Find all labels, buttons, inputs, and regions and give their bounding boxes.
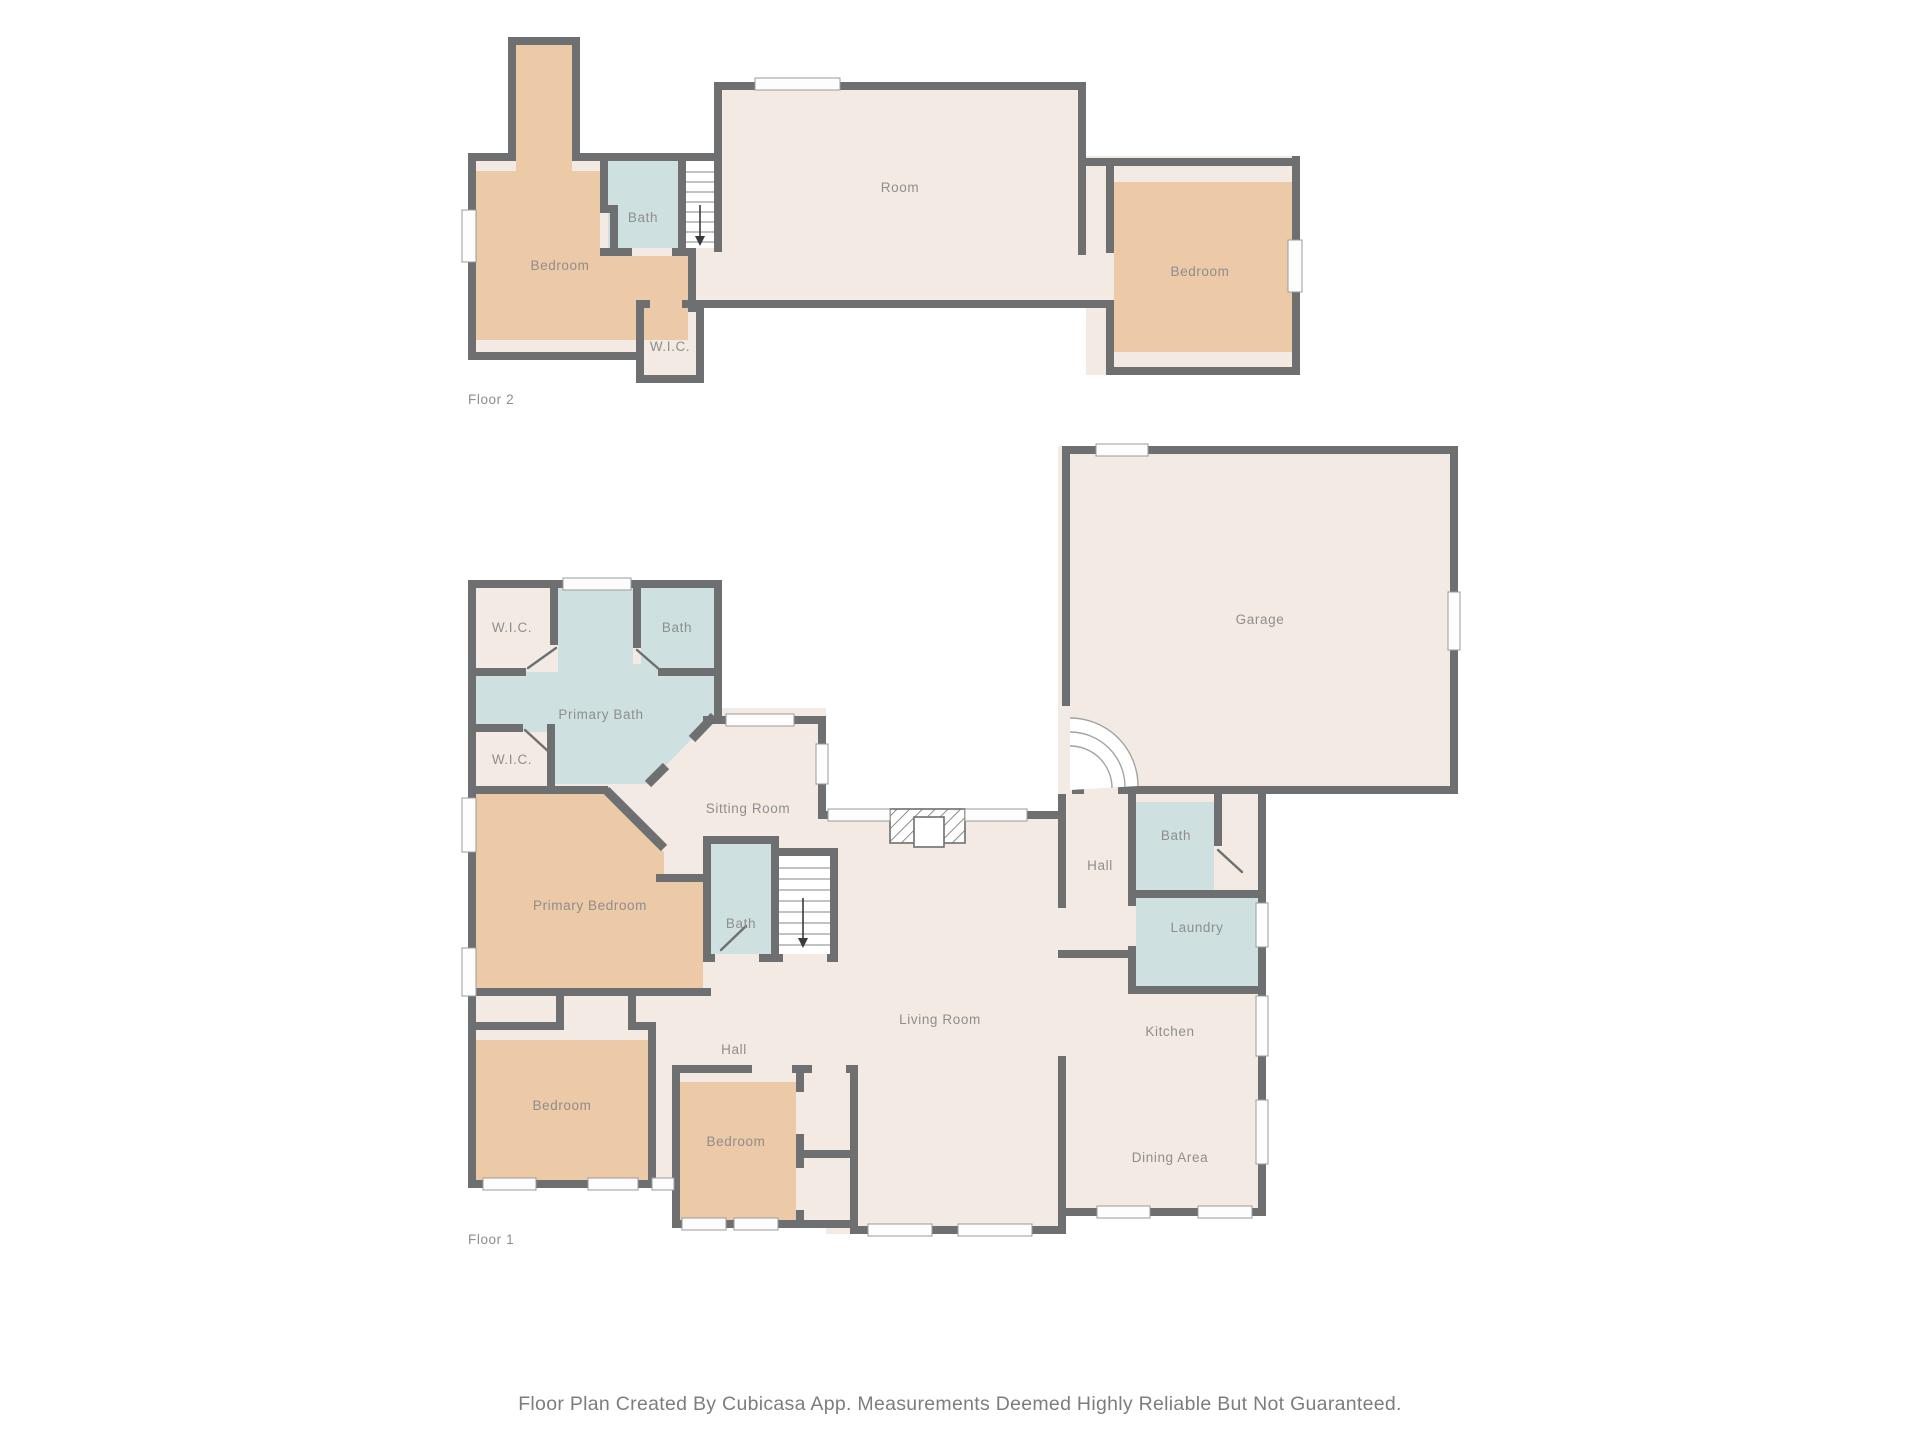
floor1-laundry-label: Laundry xyxy=(1171,920,1224,935)
window xyxy=(1097,1206,1150,1218)
window xyxy=(958,1224,1032,1236)
floor2-room-label: Room xyxy=(881,180,919,195)
floor1-bath-mid-label: Bath xyxy=(726,916,756,931)
floor-plan-page: Bedroom Bath Room Bedroom W.I.C. Floor 2 xyxy=(0,0,1920,1440)
window xyxy=(734,1218,778,1230)
floor2-stairs xyxy=(686,161,714,248)
floor1-wic-mid-label: W.I.C. xyxy=(492,752,532,767)
window xyxy=(755,78,840,90)
window xyxy=(965,809,1027,821)
window xyxy=(563,578,631,590)
caption: Floor Plan Created By Cubicasa App. Meas… xyxy=(518,1393,1402,1415)
floor1-primary-bath-label: Primary Bath xyxy=(558,707,643,722)
floor1-kitchen-label: Kitchen xyxy=(1145,1024,1194,1039)
floor2-plan: Bedroom Bath Room Bedroom W.I.C. Floor 2 xyxy=(462,37,1302,407)
window xyxy=(1256,903,1268,947)
floor-plan-canvas: Bedroom Bath Room Bedroom W.I.C. Floor 2 xyxy=(0,0,1920,1440)
floor1-sitting-label: Sitting Room xyxy=(706,801,790,816)
fireplace xyxy=(890,809,965,847)
floor1-bath-east-label: Bath xyxy=(1161,828,1191,843)
floor1-bedroom-mid-label: Bedroom xyxy=(707,1134,766,1149)
window xyxy=(1198,1206,1252,1218)
floor2-title: Floor 2 xyxy=(468,392,514,407)
window xyxy=(462,948,476,996)
floor1-bedroom-left-label: Bedroom xyxy=(533,1098,592,1113)
floor1-bedroom-mid-room xyxy=(680,1082,796,1220)
floor1-dining-label: Dining Area xyxy=(1132,1150,1208,1165)
window xyxy=(588,1178,638,1190)
floor2-bedroom-left-protrusion xyxy=(516,45,572,171)
window xyxy=(462,798,476,852)
floor1-primary-bedroom-label: Primary Bedroom xyxy=(533,898,647,913)
window xyxy=(652,1178,674,1190)
floor1-bath-mid-room xyxy=(711,844,771,954)
floor2-bedroom-right-label: Bedroom xyxy=(1171,264,1230,279)
window xyxy=(828,809,890,821)
floor1-plan: W.I.C. Bath Primary Bath W.I.C. Sitting … xyxy=(462,444,1460,1247)
floor1-hall-bottom-label: Hall xyxy=(721,1042,747,1057)
window xyxy=(462,210,476,262)
floor2-bath-label: Bath xyxy=(628,210,658,225)
window xyxy=(682,1218,726,1230)
window xyxy=(868,1224,932,1236)
window xyxy=(1256,996,1268,1056)
floor1-garage-label: Garage xyxy=(1236,612,1285,627)
window xyxy=(1448,592,1460,650)
window xyxy=(1096,444,1148,456)
floor1-bath-east-room xyxy=(1136,802,1214,890)
window xyxy=(726,714,794,726)
floor2-wic-label: W.I.C. xyxy=(650,339,690,354)
window xyxy=(1256,1100,1268,1164)
floor1-bath-top-label: Bath xyxy=(662,620,692,635)
floor2-bedroom-left-label: Bedroom xyxy=(531,258,590,273)
floor2-bath-room xyxy=(608,161,678,248)
window xyxy=(1288,240,1302,292)
floor1-hall-east-label: Hall xyxy=(1087,858,1113,873)
floor1-laundry-room xyxy=(1136,898,1258,986)
window xyxy=(483,1178,536,1190)
window xyxy=(816,744,828,784)
floor1-living-label: Living Room xyxy=(899,1012,981,1027)
floor1-stairs xyxy=(779,856,830,954)
floor1-title: Floor 1 xyxy=(468,1232,514,1247)
floor1-wic-top-label: W.I.C. xyxy=(492,620,532,635)
